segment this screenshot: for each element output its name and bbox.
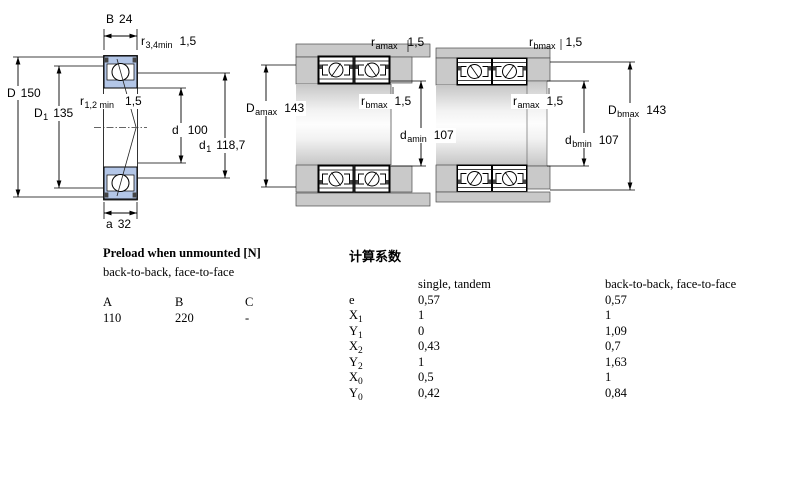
dim-label-r-amax: ramax1,5: [511, 94, 565, 109]
dim-label-d-amin: damin107: [398, 128, 456, 143]
dim-label-r34: r3,4min1,5: [141, 34, 196, 49]
factor-value: 0,42: [418, 386, 605, 402]
dim-label-a: a32: [106, 217, 131, 231]
preload-col-b: B: [175, 294, 245, 310]
preload-grid: A B C 110 220 -: [103, 294, 323, 326]
factor-row-label: e: [349, 293, 418, 309]
dim-label-D-bmax: Dbmax143: [606, 103, 668, 118]
dim-label-D: D150: [5, 86, 43, 100]
bearing-datasheet-page: .blue { fill: var(--bearing-blue, #b3c6e…: [0, 0, 800, 500]
preload-value-b: 220: [175, 310, 245, 326]
factor-row-label: X2: [349, 339, 418, 355]
preload-subtitle: back-to-back, face-to-face: [103, 265, 323, 280]
dim-label-r-bmax: rbmax1,5: [359, 94, 413, 109]
factor-value: 1: [605, 370, 765, 386]
factor-row-label: Y0: [349, 386, 418, 402]
preload-col-c: C: [245, 294, 323, 310]
dim-label-B: B24: [106, 12, 132, 26]
factors-col-back-to-back: back-to-back, face-to-face: [605, 277, 765, 293]
factor-row-label: X0: [349, 370, 418, 386]
dim-label-r-amax-top: ramax1,5: [371, 35, 424, 50]
factor-value: 0: [418, 324, 605, 340]
calculation-factors-table: 计算系数 single, tandem back-to-back, face-t…: [349, 246, 765, 401]
preload-title: Preload when unmounted [N]: [103, 246, 323, 261]
factor-value: 0,57: [605, 293, 765, 309]
dim-label-d1: d1118,7: [197, 138, 247, 153]
factor-row-label: Y2: [349, 355, 418, 371]
factor-value: 0,7: [605, 339, 765, 355]
factor-value: 0,84: [605, 386, 765, 402]
dim-label-r-bmax-top: rbmax1,5: [529, 35, 582, 50]
factors-grid: single, tandem back-to-back, face-to-fac…: [349, 277, 765, 401]
factor-value: 1: [418, 308, 605, 324]
preload-table: Preload when unmounted [N] back-to-back,…: [103, 246, 323, 326]
factor-value: 0,57: [418, 293, 605, 309]
factor-value: 0,5: [418, 370, 605, 386]
factor-row-label: Y1: [349, 324, 418, 340]
preload-value-a: 110: [103, 310, 175, 326]
mounted-pair-diagram-1: [261, 40, 430, 206]
dim-label-D1: D1135: [32, 106, 75, 121]
dim-label-d-bmin: dbmin107: [563, 133, 621, 148]
dim-label-d: d100: [170, 123, 210, 137]
factor-row-label: X1: [349, 308, 418, 324]
factor-value: 0,43: [418, 339, 605, 355]
factor-value: 1: [605, 308, 765, 324]
factors-col-spacer: [349, 277, 418, 293]
dim-label-r12: r1,2 min1,5: [78, 94, 144, 109]
factors-col-single-tandem: single, tandem: [418, 277, 605, 293]
factor-value: 1,09: [605, 324, 765, 340]
preload-col-a: A: [103, 294, 175, 310]
factor-value: 1,63: [605, 355, 765, 371]
mounted-pair-diagram-2: [436, 39, 635, 202]
factors-title: 计算系数: [349, 246, 765, 265]
preload-value-c: -: [245, 310, 323, 326]
factor-value: 1: [418, 355, 605, 371]
dim-label-D-amax: Damax143: [244, 101, 306, 116]
